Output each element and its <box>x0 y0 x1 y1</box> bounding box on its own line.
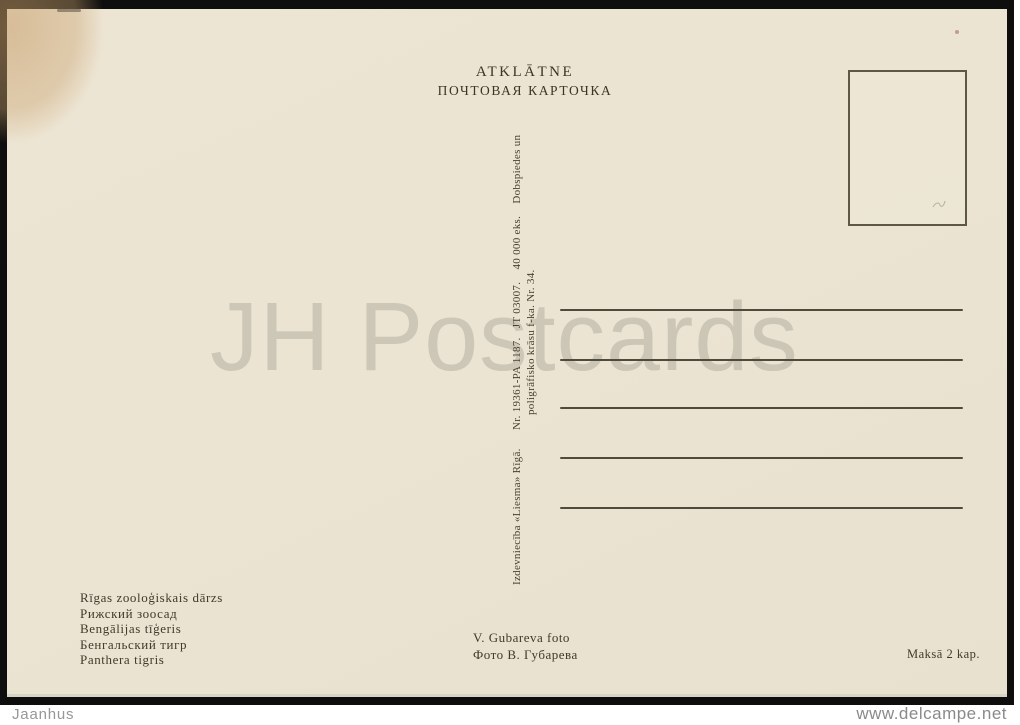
photo-credit-cyrillic: Фото В. Губарева <box>473 646 578 663</box>
address-line <box>560 457 963 459</box>
postcard-back: JH Postcards ATKLĀTNE ПОЧТОВАЯ КАРТОЧКА … <box>7 9 1007 697</box>
caption-line-russian-subject: Бенгальский тигр <box>80 637 223 653</box>
title-latvian: ATKLĀTNE <box>295 64 755 81</box>
scan-footer: Jaanhus www.delcampe.net <box>0 705 1020 725</box>
price-label: Maksā 2 kap. <box>840 647 980 662</box>
address-line <box>560 507 963 509</box>
pencil-mark <box>931 198 947 210</box>
collector-watermark: Jaanhus <box>12 705 74 725</box>
imprint-line1: Izdevniecība «Liesma» Rīgā. Nr. 19361-PA… <box>510 125 524 585</box>
postcard-content: ATKLĀTNE ПОЧТОВАЯ КАРТОЧКА Izdevniecība … <box>7 9 1007 697</box>
caption-block: Rīgas zooloģiskais dārzs Рижский зоосад … <box>80 590 223 668</box>
photo-credit-latin: V. Gubareva foto <box>473 629 578 646</box>
photo-credit: V. Gubareva foto Фото В. Губарева <box>473 629 578 663</box>
caption-line-russian-place: Рижский зоосад <box>80 606 223 622</box>
caption-line-latvian-place: Rīgas zooloģiskais dārzs <box>80 590 223 606</box>
imprint-line2: poligrāfisko krāsu f-ka. Nr. 34. <box>524 125 538 415</box>
delcampe-watermark: www.delcampe.net <box>856 704 1007 724</box>
caption-line-latin-name: Panthera tigris <box>80 652 223 668</box>
address-line <box>560 309 963 311</box>
stamp-box <box>848 70 967 226</box>
caption-line-latvian-subject: Bengālijas tīģeris <box>80 621 223 637</box>
address-line <box>560 407 963 409</box>
postcard-title: ATKLĀTNE ПОЧТОВАЯ КАРТОЧКА <box>295 64 755 99</box>
title-russian: ПОЧТОВАЯ КАРТОЧКА <box>295 83 755 99</box>
address-line <box>560 359 963 361</box>
publisher-imprint: Izdevniecība «Liesma» Rīgā. Nr. 19361-PA… <box>510 125 540 585</box>
scan-black-frame: JH Postcards ATKLĀTNE ПОЧТОВАЯ КАРТОЧКА … <box>0 0 1014 705</box>
